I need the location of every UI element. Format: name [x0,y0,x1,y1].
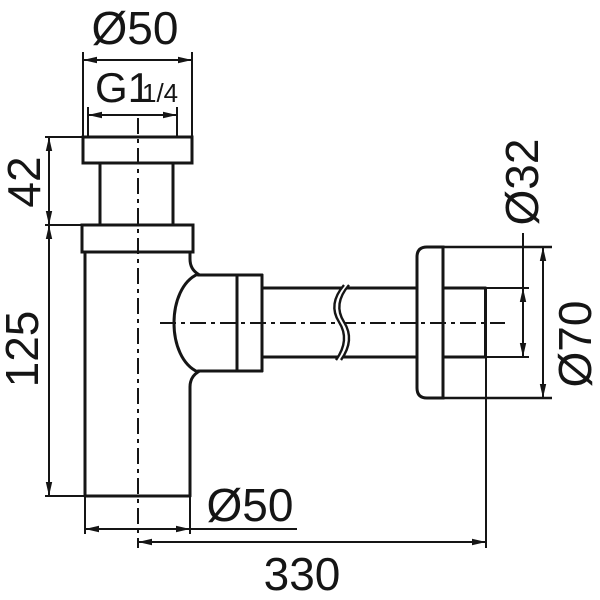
arrow-icon [46,211,52,225]
arrow-icon [138,539,152,545]
label-body-height: 125 [0,311,48,388]
arrow-icon [520,288,526,302]
arrow-icon [46,225,52,239]
label-top-diameter: Ø50 [92,2,179,54]
extension-lines [45,52,552,548]
arrow-icon [540,247,546,261]
label-length: 330 [264,548,341,600]
arrow-icon [520,343,526,357]
arrow-icon [46,482,52,496]
arrow-icon [83,57,97,63]
body-right-wall-with-outlet-bulge [174,252,198,496]
technical-drawing-page: Ø50 G1 1/4 42 125 Ø32 Ø70 Ø50 330 [0,0,600,600]
label-pipe-diameter: Ø32 [496,139,548,226]
trap-outline [82,137,486,496]
label-flange-diameter: Ø70 [549,301,600,388]
dimension-lines [46,57,546,545]
arrow-icon [46,137,52,151]
arrow-icon [472,539,486,545]
center-lines [138,118,505,548]
arrow-icon [540,384,546,398]
arrow-icon [85,526,99,532]
dimension-labels: Ø50 G1 1/4 42 125 Ø32 Ø70 Ø50 330 [0,2,600,600]
arrow-icon [163,112,177,118]
bottle-trap-dimension-drawing: Ø50 G1 1/4 42 125 Ø32 Ø70 Ø50 330 [0,0,600,600]
arrow-icon [88,112,102,118]
arrow-icon [178,57,192,63]
label-thread-fraction: 1/4 [142,78,178,108]
label-inlet-height: 42 [0,156,50,207]
arrow-icon [176,526,190,532]
label-body-diameter: Ø50 [207,479,294,531]
